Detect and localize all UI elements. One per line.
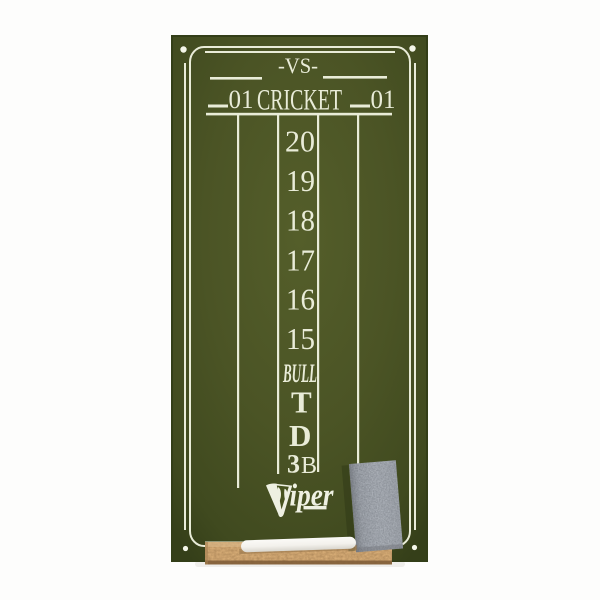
svg-text:B: B [301,453,317,479]
svg-text:16: 16 [286,282,315,317]
svg-text:01: 01 [229,85,254,114]
svg-text:15: 15 [286,321,315,356]
svg-text:-VS-: -VS- [278,53,318,78]
svg-text:01: 01 [371,85,396,114]
svg-text:CRICKET: CRICKET [257,84,342,117]
svg-text:D: D [289,418,311,453]
svg-text:20: 20 [285,124,315,159]
svg-text:3: 3 [287,450,300,479]
svg-text:19: 19 [286,163,315,198]
svg-text:17: 17 [286,243,315,278]
svg-text:T: T [291,385,312,420]
svg-text:18: 18 [286,203,315,238]
